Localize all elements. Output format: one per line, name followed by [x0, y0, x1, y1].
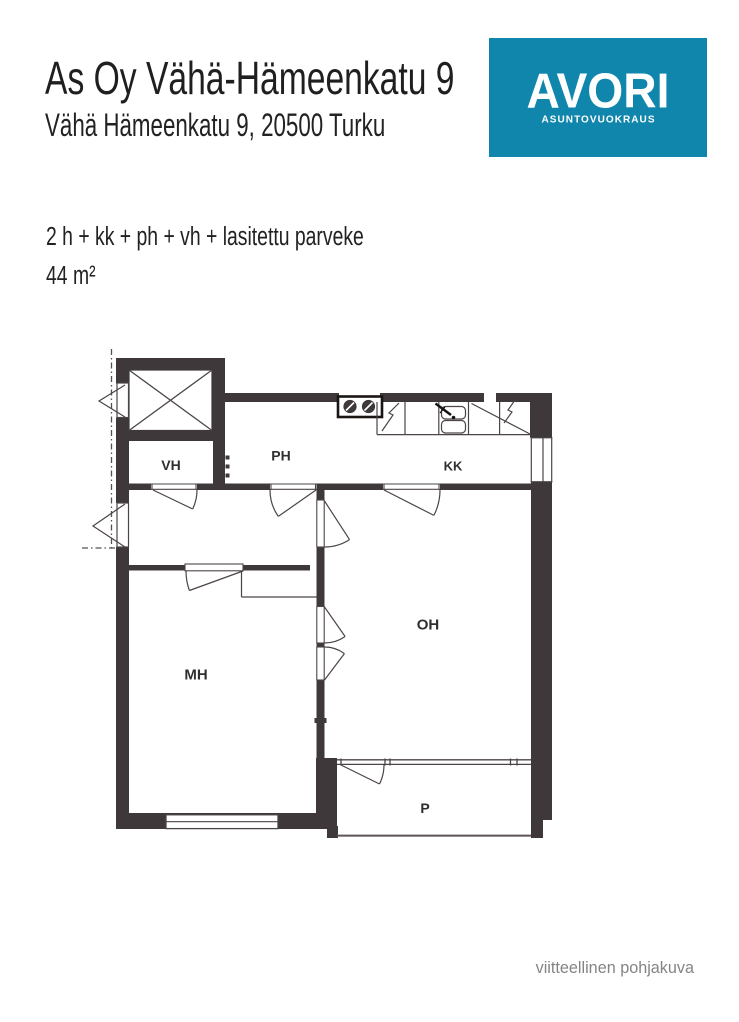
- svg-text:MH: MH: [184, 666, 207, 683]
- svg-text:KK: KK: [444, 459, 463, 474]
- svg-text:OH: OH: [417, 616, 440, 633]
- svg-text:PH: PH: [271, 448, 290, 464]
- svg-text:VH: VH: [161, 457, 180, 473]
- svg-text:P: P: [420, 800, 429, 816]
